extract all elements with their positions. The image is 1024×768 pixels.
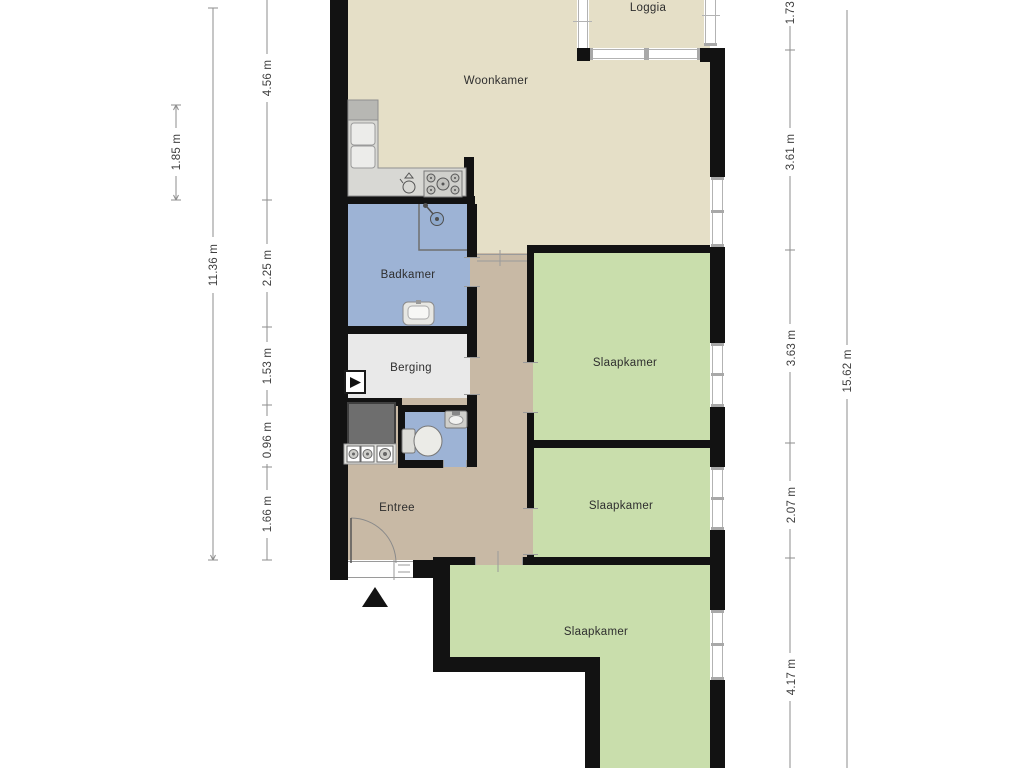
wall-bath-storage-divider: [348, 326, 477, 334]
kitchen-sink-basin-1: [351, 123, 375, 145]
room-label-badkamer: Badkamer: [381, 269, 436, 281]
room-label-loggia: Loggia: [630, 2, 667, 14]
wall-left-outer: [330, 0, 348, 580]
window-bedroom1: [711, 343, 724, 407]
dim-label-1-53: 1.53 m: [262, 348, 274, 384]
wall-right-outer-3: [710, 407, 725, 467]
room-slaapkamer-1: [533, 253, 710, 440]
room-label-slaapkamer-1: Slaapkamer: [593, 357, 657, 369]
floorplan-page: Woonkamer Loggia Badkamer Berging Entree…: [0, 0, 1024, 768]
wall-bath-right-upper: [467, 204, 477, 257]
wall-right-outer-5: [710, 680, 725, 768]
wall-bedroom2-left: [527, 448, 534, 508]
dim-label-1-73: 1.73 m: [785, 0, 797, 24]
floorplan-svg: Woonkamer Loggia Badkamer Berging Entree…: [0, 0, 1024, 768]
dim-label-1-85: 1.85 m: [171, 134, 183, 170]
room-label-berging: Berging: [390, 362, 432, 374]
toilet-sink-icon: [445, 411, 467, 428]
dim-label-4-17: 4.17 m: [786, 659, 798, 695]
wall-bedroom3-left: [433, 557, 450, 672]
dim-label-0-96: 0.96 m: [262, 422, 274, 458]
window-loggia-right: [702, 0, 720, 46]
wall-right-outer-1: [710, 48, 725, 177]
window-bedroom2: [711, 467, 724, 530]
room-label-slaapkamer-2: Slaapkamer: [589, 500, 653, 512]
wall-bedroom3-top-right: [523, 557, 710, 565]
wall-bedroom3-bottom-vertical: [585, 672, 600, 768]
dim-label-3-61: 3.61 m: [785, 134, 797, 170]
wall-bedroom3-top-left: [450, 557, 475, 565]
wall-bath-right-lower: [467, 287, 477, 326]
wall-right-outer-2: [710, 247, 725, 343]
stove-icon: [424, 171, 462, 197]
dim-label-2-25: 2.25 m: [262, 250, 274, 286]
wall-bedroom1-top: [527, 245, 710, 253]
dim-line-right-inner: [785, 0, 795, 768]
window-loggia-bottom: [590, 48, 700, 60]
room-label-entree: Entree: [379, 502, 415, 514]
dim-label-1-66: 1.66 m: [262, 496, 274, 532]
window-woonkamer: [711, 177, 724, 247]
room-label-woonkamer: Woonkamer: [464, 75, 528, 87]
wall-loggia-post-left: [577, 48, 590, 61]
wall-right-outer-4: [710, 530, 725, 610]
closet-block: [348, 403, 395, 444]
ventilation-box-icon: [345, 371, 365, 393]
rooms-layer: [348, 0, 710, 768]
wall-bedroom-divider: [527, 440, 710, 448]
washer-dryer-icons: [344, 444, 396, 464]
dim-label-2-07: 2.07 m: [786, 487, 798, 523]
dim-label-11-36: 11.36 m: [208, 244, 220, 286]
wall-entree-bottom-stub: [413, 560, 433, 578]
wall-storage-right: [467, 334, 477, 357]
toilet-icon: [402, 426, 442, 456]
entrance-triangle-marker: [362, 587, 388, 607]
wall-bedroom3-bottom-horizontal: [433, 657, 600, 672]
window-bedroom3: [711, 610, 724, 680]
dim-label-15-62: 15.62 m: [842, 350, 854, 393]
dim-label-3-63: 3.63 m: [786, 330, 798, 366]
room-label-slaapkamer-3: Slaapkamer: [564, 626, 628, 638]
kitchen-sink-basin-2: [351, 146, 375, 168]
wall-loggia-corner-right: [700, 48, 725, 62]
wall-toilet-bottom: [398, 460, 443, 468]
dim-label-4-56: 4.56 m: [262, 60, 274, 96]
bathroom-sink-icon: [403, 300, 434, 325]
wall-bedroom1-left-upper: [527, 253, 534, 362]
kitchen-counter-cap: [348, 100, 378, 120]
